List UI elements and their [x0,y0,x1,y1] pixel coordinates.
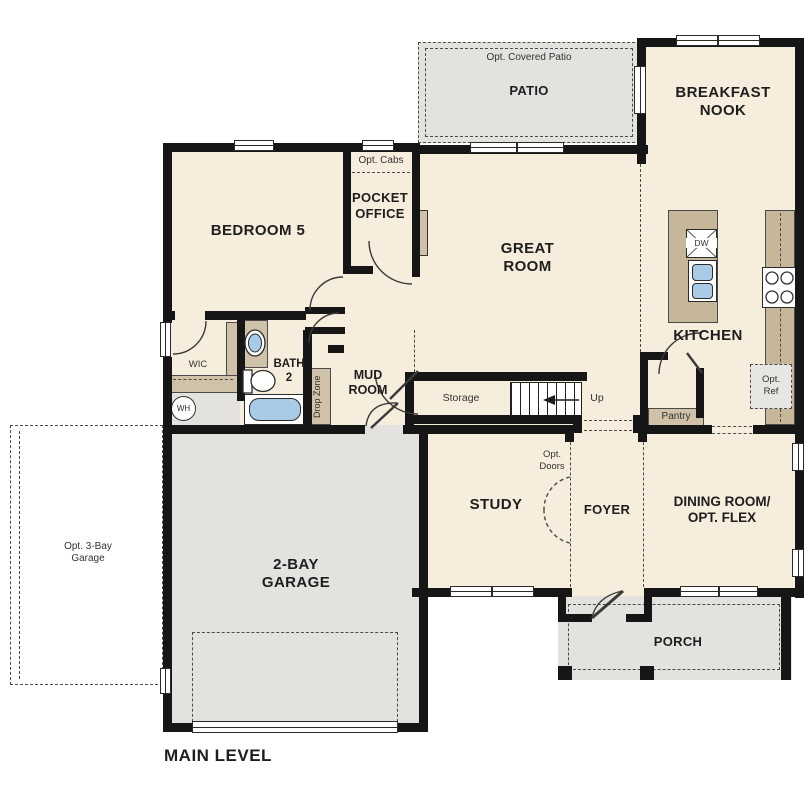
floor-greatroom-wing [412,145,647,595]
label-breakfast-nook: BREAKFAST NOOK [648,84,798,121]
porch-post-left [558,666,572,680]
porch-post-mid [640,666,654,680]
wall-kitchen-south-right [753,425,803,434]
wall-garage-north-left [163,425,365,434]
wall-garage-south-left [163,723,195,732]
foyer-dining-opening [643,437,644,587]
label-great-room: GREAT ROOM [460,240,595,277]
label-opt-3bay-garage: Opt. 3-Bay Garage [30,541,146,565]
wall-storage-south [405,415,582,424]
window-greatroom-north-a [470,142,517,153]
window-bedroom-north [234,140,274,151]
label-opt-ref: Opt. Ref [750,374,792,397]
wall-west-upper [163,143,172,323]
garage-door-outline [192,632,398,722]
wall-vestibule-front-left [558,614,592,622]
opt-3bay-garage-inner-line [19,431,20,679]
label-dining-room: DINING ROOM/ OPT. FLEX [653,494,791,527]
label-drop-zone: Drop Zone [312,371,330,423]
label-opt-cabs: Opt. Cabs [350,155,412,167]
wall-garage-north-right [403,425,573,434]
wall-stub-dining-nw [638,433,647,442]
label-pantry: Pantry [648,411,704,423]
label-study: STUDY [440,496,552,514]
label-storage: Storage [430,392,492,405]
label-kitchen: KITCHEN [648,327,768,345]
kitchen-dining-opening-b [712,433,752,434]
label-foyer: FOYER [574,502,640,518]
window-garage-west [160,668,171,694]
window-dining-south-b [719,586,758,597]
window-dining-east-a [792,443,804,471]
wall-wic-bath [237,311,245,401]
wall-garage-east [419,430,428,732]
wall-kitchen-south-left [644,425,712,434]
label-bedroom5: BEDROOM 5 [178,222,338,240]
plan-title: MAIN LEVEL [164,746,384,767]
wall-stub-stairs-left [573,415,582,433]
label-patio: PATIO [418,83,640,99]
label-opt-covered-patio: Opt. Covered Patio [418,52,640,64]
wall-bedroom-south-a [163,311,175,320]
staircase [510,382,582,419]
wall-bedroom-south-c [240,311,306,320]
wall-east [795,38,804,598]
window-nook-north-a [676,35,718,46]
bath-vanity [243,320,268,368]
label-opt-doors: Opt. Doors [530,449,574,472]
floor-plan: Opt. Covered Patio PATIO BREAKFAST NOOK … [0,0,810,810]
porch-column-right [781,596,791,680]
label-up: Up [584,392,610,405]
window-dining-south-a [680,586,719,597]
label-wic: WIC [172,359,224,371]
wall-bath-jamb-top [305,307,345,314]
wic-shelf [170,375,238,393]
wall-stub-study-ne [565,433,574,442]
wall-pantry-north [640,352,668,360]
kitchen-sink-basin-bottom [692,283,713,299]
label-mud-room: MUD ROOM [336,368,400,399]
kitchen-dining-opening-a [712,426,752,427]
window-nook-north-b [718,35,760,46]
stairs-foyer-opening-a [584,420,632,421]
label-porch: PORCH [620,634,736,650]
label-water-heater: WH [171,404,196,414]
wall-greatroom-south [405,372,587,381]
greatroom-kitchen-opening [640,164,641,352]
label-dishwasher: DW [686,238,717,248]
window-pocket-north [362,140,394,151]
hall-greatroom-opening [414,330,415,372]
window-greatroom-north-b [517,142,564,153]
wall-kitchen-stub-north [637,150,646,164]
garage-door-panel [192,721,398,733]
stove [762,267,796,308]
kitchen-sink-basin-top [692,264,713,281]
window-study-south-a [450,586,492,597]
window-wic-west [160,322,171,357]
wall-mud-stub [328,345,344,353]
label-pocket-office: POCKET OFFICE [344,190,416,222]
stairs-foyer-opening-b [584,430,632,431]
label-bath2: BATH 2 [267,357,311,385]
wall-hall-stub [343,266,373,274]
bathtub [249,398,301,421]
wic-shelf-line [173,379,233,380]
opt-cabs-line [352,172,410,173]
wall-west-mid [163,357,172,433]
wall-stub-stairs-right [633,415,643,433]
window-study-south-b [492,586,534,597]
label-2bay-garage: 2-BAY GARAGE [226,556,366,593]
window-dining-east-b [792,549,804,577]
